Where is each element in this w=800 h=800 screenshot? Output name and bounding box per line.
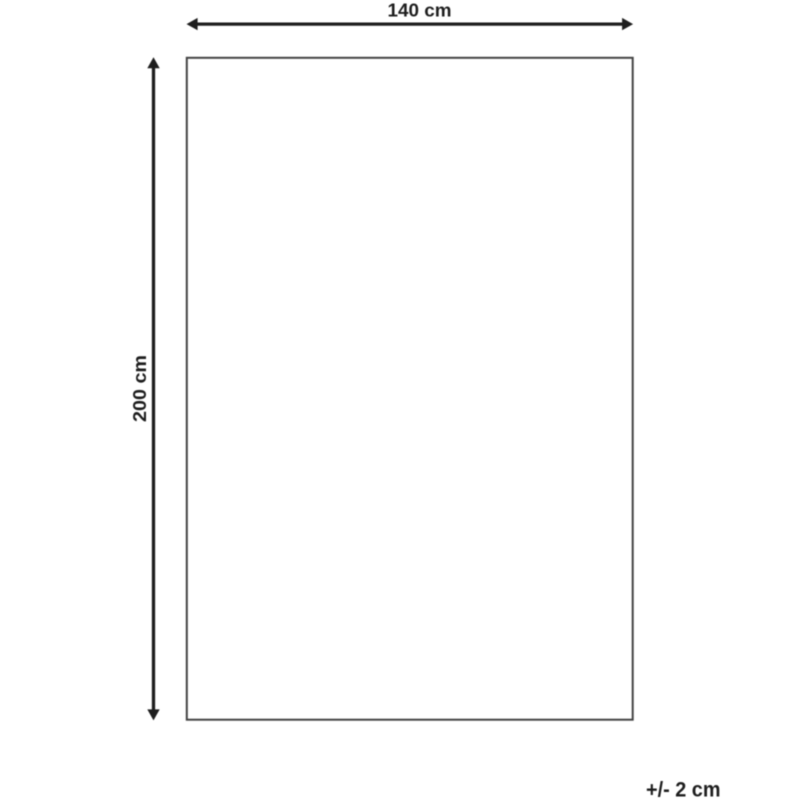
svg-text:140 cm: 140 cm [388, 1, 452, 21]
svg-text:200 cm: 200 cm [130, 355, 150, 422]
svg-text:+/- 2 cm: +/- 2 cm [646, 777, 721, 800]
